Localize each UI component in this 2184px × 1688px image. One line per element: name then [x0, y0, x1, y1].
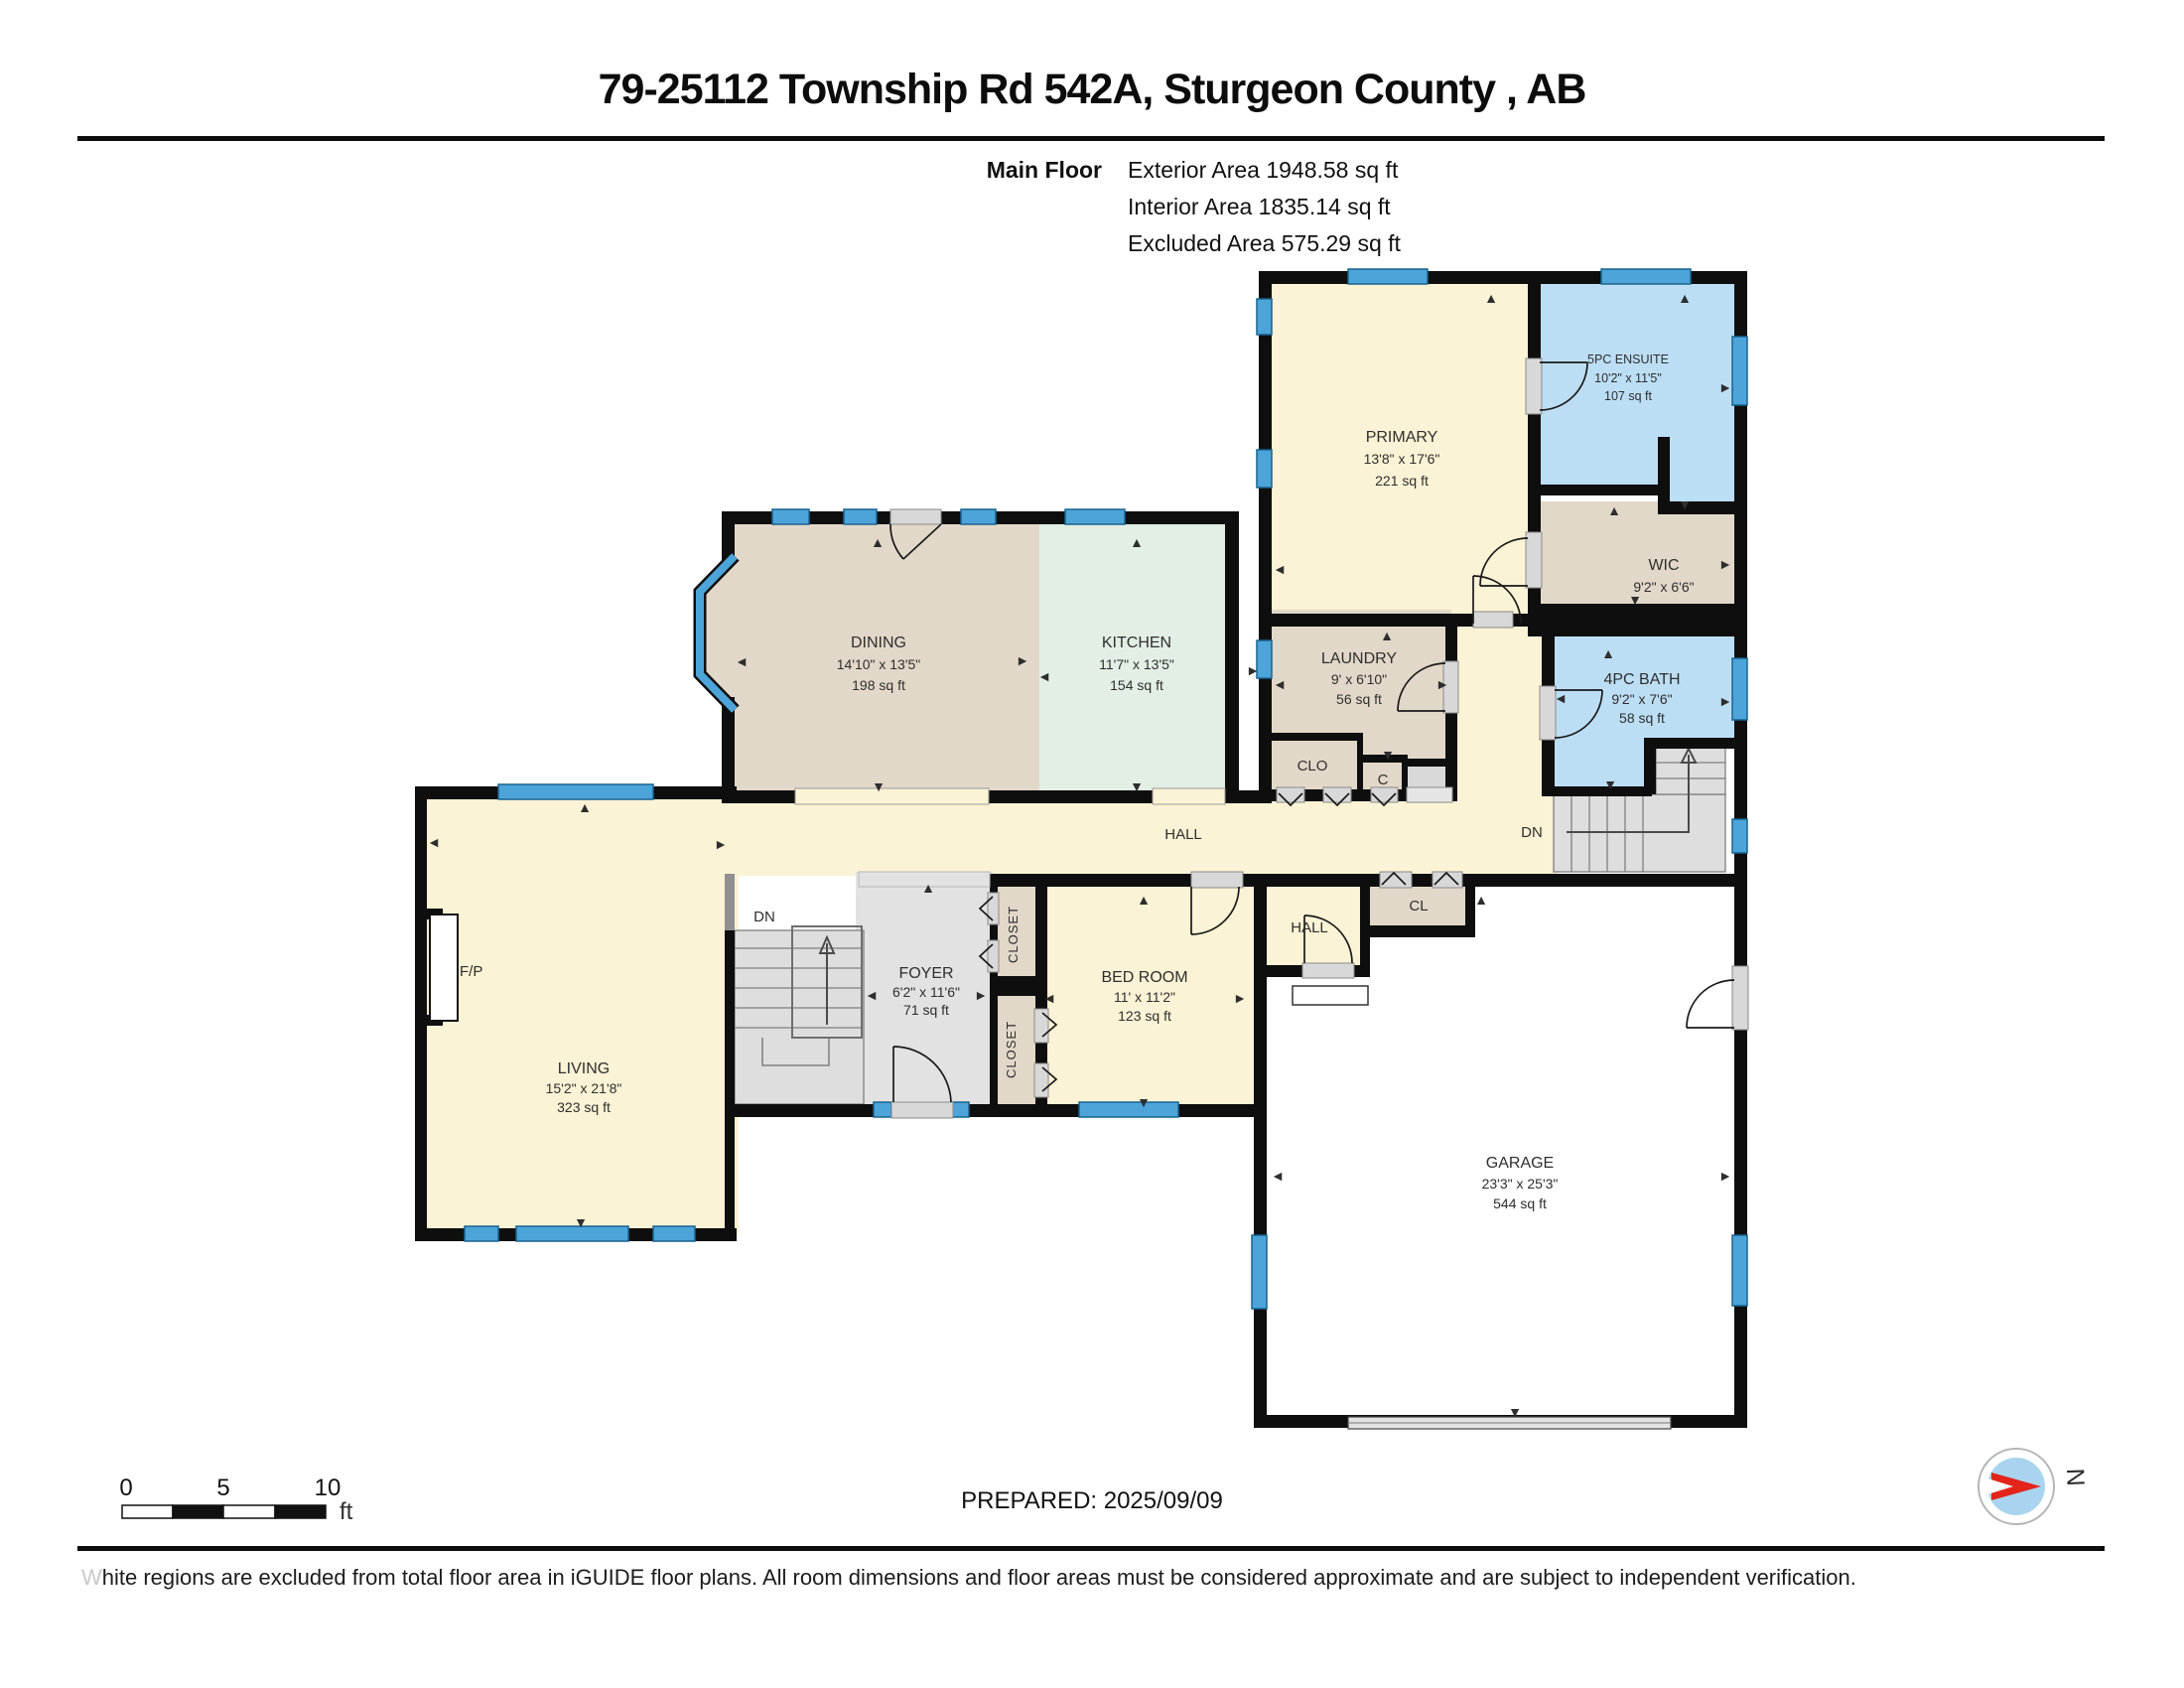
- svg-text:◄: ◄: [1273, 561, 1287, 577]
- svg-text:▲: ▲: [1130, 534, 1144, 550]
- label-clo: CLO: [1297, 758, 1328, 774]
- floorplan-page: 79-25112 Township Rd 542A, Sturgeon Coun…: [0, 0, 2184, 1688]
- label-laundry-area: 56 sq ft: [1336, 691, 1382, 707]
- svg-text:►: ►: [974, 987, 988, 1003]
- label-closet-top: CLOSET: [1006, 906, 1021, 963]
- svg-text:►: ►: [1246, 662, 1260, 678]
- label-foyer-name: FOYER: [898, 965, 953, 982]
- compass-north-label: N: [2061, 1468, 2090, 1486]
- entry-stoop: [1293, 986, 1368, 1005]
- svg-text:►: ►: [1233, 990, 1247, 1006]
- svg-text:◄: ◄: [427, 834, 441, 850]
- label-kitchen-name: KITCHEN: [1102, 634, 1171, 651]
- svg-text:◄: ◄: [1273, 676, 1287, 692]
- label-primary-dims: 13'8" x 17'6": [1364, 451, 1440, 467]
- disclaimer-text: White regions are excluded from total fl…: [81, 1565, 1968, 1591]
- label-c: C: [1378, 772, 1389, 788]
- label-bath-area: 58 sq ft: [1619, 710, 1665, 726]
- svg-text:◄: ◄: [735, 653, 749, 669]
- label-kitchen-dims: 11'7" x 13'5": [1099, 656, 1174, 672]
- label-foyer-area: 71 sq ft: [903, 1002, 949, 1018]
- label-primary-name: PRIMARY: [1366, 429, 1438, 446]
- svg-text:◄: ◄: [1554, 690, 1568, 706]
- room-living-floor: [421, 792, 739, 1234]
- svg-text:▲: ▲: [578, 799, 592, 815]
- label-laundry-dims: 9' x 6'10": [1331, 671, 1387, 687]
- stair-half-wall: [725, 874, 735, 930]
- svg-text:►: ►: [1718, 1168, 1732, 1184]
- svg-text:►: ►: [1718, 693, 1732, 709]
- label-dining-name: DINING: [851, 634, 906, 651]
- svg-text:◄: ◄: [1042, 990, 1056, 1006]
- label-ensuite-dims: 10'2" x 11'5": [1594, 371, 1662, 385]
- svg-text:►: ►: [1718, 556, 1732, 572]
- svg-text:▼: ▼: [1137, 1094, 1151, 1110]
- label-ensuite-area: 107 sq ft: [1604, 389, 1652, 403]
- svg-text:►: ►: [1016, 652, 1029, 668]
- svg-text:▼: ▼: [1381, 747, 1395, 763]
- room-fills: [421, 281, 1739, 1420]
- label-foyer-dims: 6'2" x 11'6": [892, 984, 960, 1000]
- label-bedroom-area: 123 sq ft: [1118, 1008, 1171, 1024]
- label-dining-dims: 14'10" x 13'5": [837, 656, 921, 672]
- svg-text:▼: ▼: [1508, 1404, 1522, 1420]
- label-hall-main: HALL: [1164, 826, 1202, 843]
- svg-text:▲: ▲: [1484, 290, 1498, 306]
- label-bedroom-name: BED ROOM: [1101, 969, 1187, 986]
- svg-text:►: ►: [1718, 379, 1732, 395]
- label-laundry-name: LAUNDRY: [1321, 650, 1398, 667]
- svg-text:▼: ▼: [872, 778, 886, 794]
- prepared-date: PREPARED: 2025/09/09: [0, 1487, 2184, 1515]
- label-closet-bottom: CLOSET: [1004, 1021, 1019, 1078]
- svg-text:▲: ▲: [1380, 628, 1394, 643]
- label-ensuite-name: 5PC ENSUITE: [1587, 352, 1669, 366]
- svg-text:▲: ▲: [1601, 645, 1615, 661]
- label-living-dims: 15'2" x 21'8": [546, 1080, 622, 1096]
- label-fireplace: F/P: [460, 963, 482, 980]
- svg-text:▲: ▲: [1607, 502, 1621, 518]
- footer-divider: [77, 1546, 2105, 1551]
- svg-text:▼: ▼: [1678, 496, 1692, 512]
- fireplace: [427, 909, 458, 1026]
- svg-text:▼: ▼: [1603, 776, 1617, 792]
- floorplan-drawing: ▲▲ ▲▲ ▲▲ ▲▲ ▲▲ ▲ ▼▼ ▼▼ ▼▼ ▼▼ ▼ ◄◄ ◄◄ ◄◄ …: [0, 0, 2184, 1688]
- label-cl: CL: [1409, 898, 1428, 914]
- svg-text:▲: ▲: [871, 534, 885, 550]
- label-bedroom-dims: 11' x 11'2": [1114, 989, 1175, 1005]
- label-garage-dims: 23'3" x 25'3": [1482, 1176, 1559, 1192]
- svg-text:◄: ◄: [865, 987, 879, 1003]
- label-bath-name: 4PC BATH: [1603, 671, 1680, 688]
- svg-text:▼: ▼: [1130, 778, 1144, 794]
- stairs-main: [735, 926, 864, 1104]
- svg-text:◄: ◄: [1271, 1168, 1285, 1184]
- label-primary-area: 221 sq ft: [1375, 473, 1429, 489]
- svg-text:◄: ◄: [1037, 668, 1051, 684]
- label-living-area: 323 sq ft: [557, 1099, 611, 1115]
- label-bath-dims: 9'2" x 7'6": [1611, 691, 1672, 707]
- label-hall-small: HALL: [1291, 919, 1328, 936]
- svg-text:▲: ▲: [921, 880, 935, 896]
- svg-text:▲: ▲: [1137, 892, 1151, 908]
- label-dn-basement: DN: [1521, 824, 1543, 841]
- svg-text:►: ►: [1435, 676, 1449, 692]
- svg-text:▼: ▼: [574, 1214, 588, 1230]
- svg-text:►: ►: [714, 836, 728, 852]
- label-kitchen-area: 154 sq ft: [1110, 677, 1163, 693]
- label-garage-name: GARAGE: [1486, 1155, 1554, 1172]
- label-dn-stairs: DN: [753, 909, 775, 925]
- label-living-name: LIVING: [558, 1060, 610, 1077]
- svg-text:▲: ▲: [1678, 290, 1692, 306]
- svg-text:▲: ▲: [1474, 892, 1488, 908]
- label-wic-dims: 9'2" x 6'6": [1633, 579, 1694, 595]
- label-garage-area: 544 sq ft: [1493, 1196, 1547, 1211]
- label-dining-area: 198 sq ft: [852, 677, 905, 693]
- label-wic-name: WIC: [1648, 557, 1679, 574]
